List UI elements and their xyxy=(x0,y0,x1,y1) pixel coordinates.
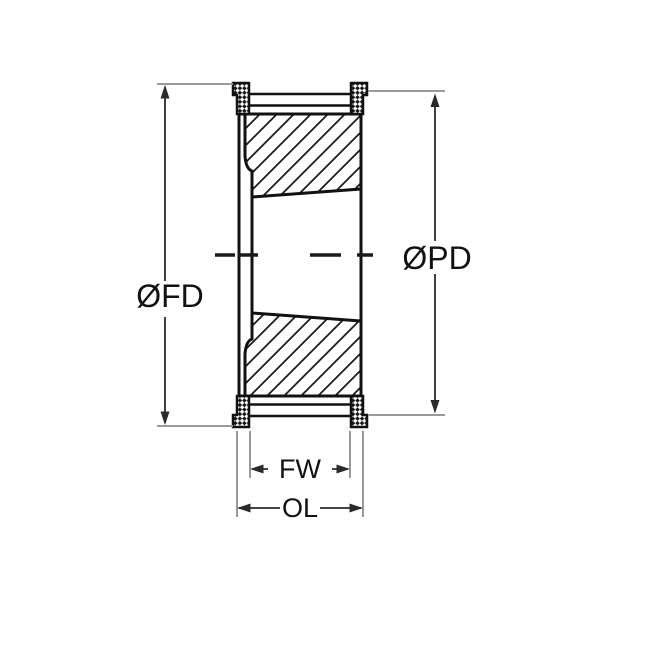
fw-label: FW xyxy=(279,454,321,484)
ol-label: OL xyxy=(282,493,318,523)
dimension-face-width: FW xyxy=(250,431,350,484)
flange-bottom-right xyxy=(351,396,367,427)
flange-top-right xyxy=(351,83,367,114)
flange-bottom-left xyxy=(233,396,249,427)
flange-top-left xyxy=(233,83,249,114)
body-section-upper xyxy=(245,114,361,197)
ol-arrow-left xyxy=(237,504,251,513)
drawing-canvas: ØFD ØPD FW OL xyxy=(0,0,670,670)
body-section-lower xyxy=(245,313,361,396)
dimension-pitch-diameter: ØPD xyxy=(368,91,472,415)
fd-arrow-down xyxy=(161,412,170,426)
ol-arrow-right xyxy=(350,504,364,513)
pulley-technical-drawing: ØFD ØPD FW OL xyxy=(0,0,670,670)
pd-arrow-down xyxy=(431,400,440,414)
pd-arrow-up xyxy=(431,94,440,108)
fd-label: ØFD xyxy=(136,278,204,314)
fw-arrow-right xyxy=(337,465,351,474)
fd-arrow-up xyxy=(161,85,170,99)
pulley-body xyxy=(215,83,373,427)
pd-label: ØPD xyxy=(402,240,471,276)
fw-arrow-left xyxy=(250,465,264,474)
